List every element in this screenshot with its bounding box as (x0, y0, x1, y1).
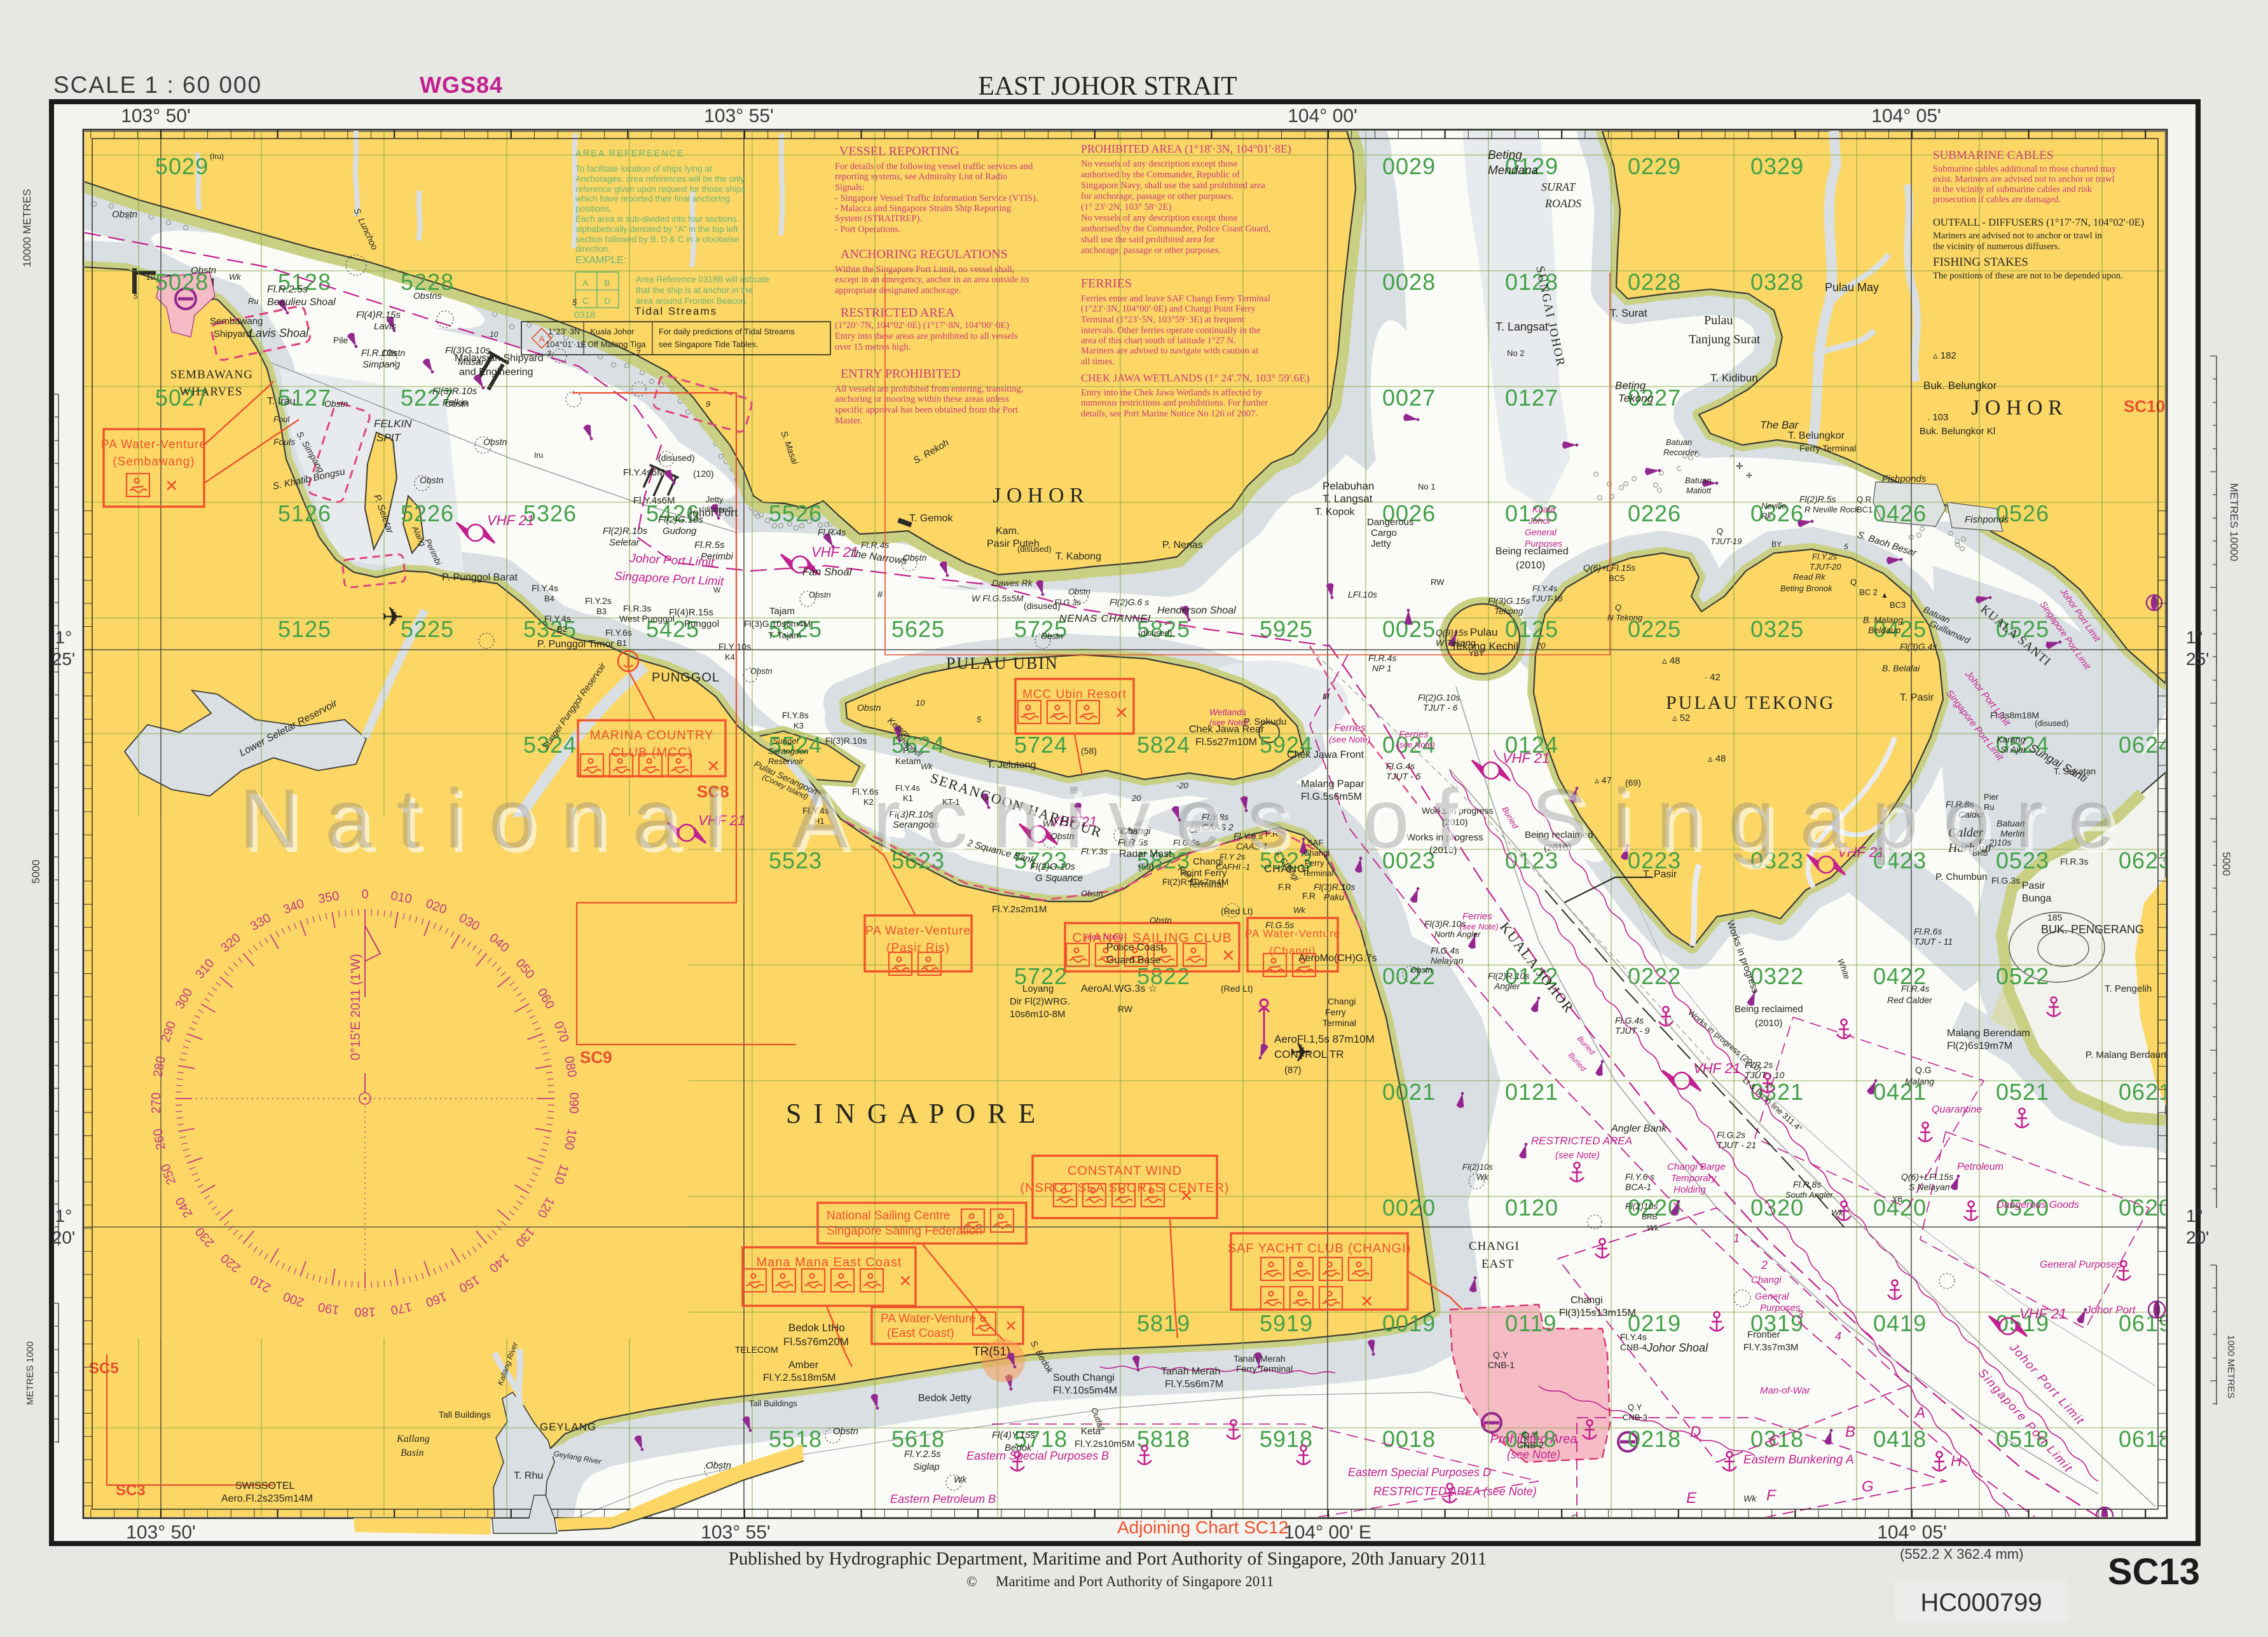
svg-text:5: 5 (977, 715, 982, 724)
svg-text:Fl.Y.2s: Fl.Y.2s (585, 596, 612, 606)
svg-text:Beting Bronok: Beting Bronok (1780, 584, 1833, 593)
svg-text:Q.Y: Q.Y (1493, 1350, 1509, 1360)
svg-text:Wk: Wk (1476, 1172, 1489, 1182)
svg-text:Loyang: Loyang (1022, 983, 1054, 994)
svg-text:over 15 metres high.: over 15 metres high. (835, 342, 911, 352)
svg-text:Fouls: Fouls (273, 437, 295, 447)
svg-text:Recorder: Recorder (1663, 448, 1698, 457)
svg-text:Fl.Y.2.5s: Fl.Y.2.5s (904, 1449, 941, 1460)
svg-text:Fl.R.4s: Fl.R.4s (1901, 983, 1929, 994)
svg-text:0419: 0419 (1873, 1310, 1927, 1336)
svg-text:Mendana: Mendana (1488, 164, 1538, 177)
svg-text:Obstn: Obstn (191, 265, 216, 276)
svg-text:WGS84: WGS84 (420, 72, 503, 98)
svg-text:Singapore Sailing Federation: Singapore Sailing Federation (827, 1224, 982, 1238)
svg-text:E: E (1686, 1490, 1697, 1507)
svg-text:Wk: Wk (1043, 819, 1055, 828)
svg-text:Each area is sub-divided i: Each area is sub-divided into four secti… (575, 214, 739, 224)
svg-text:EAST JOHOR STRAIT: EAST JOHOR STRAIT (978, 72, 1237, 101)
svg-text:1°: 1° (55, 627, 72, 647)
svg-text:Ferries: Ferries (1334, 723, 1366, 734)
svg-text:T. Langsat: T. Langsat (1495, 320, 1548, 333)
svg-text:Matiott: Matiott (1686, 486, 1712, 495)
svg-text:shall use the said pro: shall use the said prohibited area for (1081, 235, 1214, 245)
svg-text:10: 10 (916, 698, 925, 708)
svg-text:SAF YACHT CLUB (CHANGI): SAF YACHT CLUB (CHANGI) (1228, 1242, 1412, 1256)
svg-text:Fl(2)G.10s: Fl(2)G.10s (658, 514, 703, 525)
svg-text:G Squance: G Squance (1035, 873, 1083, 884)
svg-text:YBY: YBY (1469, 649, 1484, 658)
svg-text:Fl.3s8m18M: Fl.3s8m18M (1990, 710, 2039, 720)
svg-text:Paku: Paku (1324, 892, 1344, 902)
svg-text:Pulau May: Pulau May (1825, 281, 1879, 294)
svg-text:Obstn: Obstn (809, 590, 831, 599)
svg-text:P. Malang Berdaun: P. Malang Berdaun (2086, 1050, 2166, 1060)
svg-text:Terminal: Terminal (1302, 868, 1333, 878)
svg-text:T. Gemok: T. Gemok (909, 513, 953, 524)
svg-text:authorised by the Comman: authorised by the Commander, Republic of (1081, 170, 1240, 180)
svg-text:5818: 5818 (1137, 1426, 1190, 1452)
svg-text:Amber: Amber (788, 1360, 819, 1371)
svg-text:Master.: Master. (835, 416, 862, 426)
svg-text:Fl.Y.4s: Fl.Y.4s (544, 613, 571, 624)
svg-text:Johor: Johor (1528, 516, 1551, 526)
svg-text:Fl.Y.2s: Fl.Y.2s (1812, 552, 1838, 561)
svg-text:Pelabuhan: Pelabuhan (1323, 480, 1374, 492)
svg-text:T. Irau: T. Irau (267, 396, 295, 407)
svg-text:Johor Port: Johor Port (2085, 1304, 2136, 1316)
svg-text:104° 05': 104° 05' (1871, 106, 1941, 127)
svg-text:SC5: SC5 (89, 1360, 119, 1377)
svg-text:(58): (58) (1081, 746, 1097, 756)
svg-text:5: 5 (1844, 542, 1848, 551)
svg-text:Adjoining Chart SC12: Adjoining Chart SC12 (1117, 1517, 1288, 1537)
svg-text:A: A (582, 278, 589, 288)
svg-text:VESSEL REPORTING: VESSEL REPORTING (839, 144, 959, 158)
svg-text:T. Surat: T. Surat (1610, 307, 1647, 319)
svg-text:SC3: SC3 (116, 1482, 146, 1499)
svg-text:(see Note): (see Note) (1460, 922, 1499, 931)
svg-text:CNB-1: CNB-1 (1488, 1360, 1515, 1370)
svg-text:1: 1 (1733, 1232, 1740, 1245)
svg-text:METRES 1000: METRES 1000 (25, 1341, 36, 1405)
svg-text:5918: 5918 (1260, 1426, 1313, 1452)
svg-text:No vessels of any desc: No vessels of any description except tho… (1081, 159, 1237, 169)
svg-text:T. Kabong: T. Kabong (1055, 551, 1101, 562)
svg-text:✕: ✕ (1005, 1318, 1017, 1335)
svg-text:Angler Bank: Angler Bank (1611, 1123, 1667, 1134)
svg-text:FELKIN: FELKIN (374, 418, 412, 430)
svg-text:Ferries: Ferries (1399, 729, 1429, 740)
svg-text:Malang: Malang (1905, 1076, 1934, 1086)
svg-text:Pasir: Pasir (2022, 880, 2045, 891)
svg-text:Tanjung Surat: Tanjung Surat (1689, 332, 1761, 346)
svg-text:OUTFALL - DIFFUSERS (1°17'·7N,: OUTFALL - DIFFUSERS (1°17'·7N, 104°02'·0… (1933, 216, 2144, 228)
svg-text:✕: ✕ (1360, 1292, 1374, 1311)
svg-text:Obstn: Obstn (750, 666, 773, 676)
svg-text:Siglap: Siglap (913, 1462, 940, 1472)
svg-text:Fl.Y.2s10m5M: Fl.Y.2s10m5M (1075, 1439, 1135, 1449)
svg-text:Signals:: Signals: (835, 182, 865, 193)
svg-text:BUK. PENGERANG: BUK. PENGERANG (2041, 923, 2144, 936)
svg-text:Fl(2)10s: Fl(2)10s (1625, 1201, 1658, 1211)
svg-text:(see Note): (see Note) (1396, 740, 1435, 750)
svg-text:Rk: Rk (1761, 511, 1772, 521)
svg-text:S Nelayan: S Nelayan (1909, 1182, 1950, 1192)
svg-text:Obstn: Obstn (324, 399, 348, 409)
svg-text:Fl(3)R.10s: Fl(3)R.10s (825, 736, 867, 746)
svg-text:Wk: Wk (229, 272, 242, 282)
svg-text:0229: 0229 (1628, 153, 1681, 179)
svg-text:Fl(4)R.15s: Fl(4)R.15s (669, 607, 713, 618)
svg-text:No 1: No 1 (1418, 482, 1435, 491)
svg-text:Fl.Y.6s: Fl.Y.6s (605, 627, 632, 638)
svg-text:10: 10 (490, 330, 498, 339)
svg-text:K4: K4 (725, 652, 735, 662)
svg-text:National Sailing Centre: National Sailing Centre (827, 1209, 950, 1223)
svg-text:090: 090 (567, 1092, 581, 1113)
svg-text:Fishponds: Fishponds (1882, 474, 1927, 484)
svg-text:5919: 5919 (1260, 1310, 1313, 1336)
svg-text:Ketam: Ketam (895, 756, 921, 766)
svg-text:GEYLANG: GEYLANG (540, 1421, 596, 1433)
svg-text:F: F (1766, 1487, 1777, 1504)
svg-text:(disused): (disused) (658, 453, 695, 463)
svg-text:0226: 0226 (1628, 500, 1681, 526)
svg-text:Simpang: Simpang (362, 359, 401, 370)
svg-text:T. Langsat: T. Langsat (1323, 493, 1373, 505)
svg-text:Submarine cables additional to: Submarine cables additional to those cha… (1933, 164, 2117, 174)
svg-text:(see Note): (see Note) (1555, 1150, 1600, 1161)
svg-text:ROADS: ROADS (1544, 197, 1581, 210)
svg-text:Fl(4)R.15s: Fl(4)R.15s (356, 310, 401, 320)
svg-text:SWISSOTEL: SWISSOTEL (235, 1481, 294, 1491)
svg-text:Wk: Wk (1647, 1223, 1660, 1233)
svg-text:W: W (713, 586, 721, 594)
svg-text:0623: 0623 (2119, 847, 2172, 873)
svg-text:Tekong: Tekong (1494, 606, 1523, 616)
svg-text:Tall Buildings: Tall Buildings (439, 1409, 491, 1420)
svg-text:Johor Shoal: Johor Shoal (1646, 1341, 1708, 1354)
svg-text:No 2: No 2 (1507, 348, 1524, 358)
svg-text:Obstn: Obstn (1081, 889, 1103, 898)
svg-text:Fl.G.4s: Fl.G.4s (1431, 945, 1459, 955)
svg-text:T. Pengelih: T. Pengelih (2105, 983, 2152, 994)
svg-text:SURAT: SURAT (1541, 181, 1576, 193)
svg-text:Fl.5s76m20M: Fl.5s76m20M (783, 1336, 849, 1348)
svg-text:For details of the following v: For details of the following vessel traf… (835, 161, 1033, 172)
svg-text:Obstn: Obstn (112, 209, 137, 220)
svg-text:T. Jelutong: T. Jelutong (987, 760, 1036, 771)
svg-text:Terminal: Terminal (1323, 1018, 1356, 1028)
svg-text:Mariners are advised to naviga: Mariners are advised to navigate with ca… (1081, 346, 1258, 356)
svg-text:Q: Q (1717, 526, 1723, 536)
svg-text:Maritime and Port Authority of: Maritime and Port Authority of Singapore… (996, 1573, 1274, 1589)
svg-text:3: 3 (1797, 1308, 1803, 1321)
svg-text:Fl.5s27m10M: Fl.5s27m10M (1195, 737, 1257, 748)
svg-text:Entry into the Chek Jawa Wetla: Entry into the Chek Jawa Wetlands is aff… (1081, 388, 1263, 398)
svg-text:Buk. Belungkor Kl: Buk. Belungkor Kl (1920, 426, 1995, 437)
svg-text:positions.: positions. (575, 204, 612, 214)
svg-text:25': 25' (52, 649, 76, 669)
svg-text:Iru: Iru (534, 451, 543, 460)
svg-text:BY: BY (1771, 540, 1782, 549)
svg-text:that the ship is at ancho: that the ship is at anchor in the (636, 285, 753, 295)
svg-text:▲: ▲ (1881, 591, 1888, 599)
svg-text:Obstn: Obstn (1041, 631, 1063, 641)
svg-text:TJUT - 6: TJUT - 6 (1423, 702, 1458, 713)
svg-text:Ferry Terminal: Ferry Terminal (1236, 1364, 1293, 1374)
svg-text:Changi Barge: Changi Barge (1667, 1161, 1726, 1172)
svg-text:Lavis: Lavis (374, 321, 397, 332)
svg-text:▵ 52: ▵ 52 (1672, 713, 1690, 723)
svg-text:FERRIES: FERRIES (1081, 277, 1132, 291)
svg-text:reference given upon request f: reference given upon request for those s… (575, 184, 745, 194)
svg-text:0120: 0120 (1505, 1195, 1558, 1221)
svg-text:104°01'·1E: 104°01'·1E (546, 339, 586, 349)
svg-text:0121: 0121 (1505, 1079, 1558, 1105)
svg-text:All vessels are prohibited: All vessels are prohibited from entering… (835, 384, 1023, 394)
svg-text:HC000799: HC000799 (1920, 1589, 2042, 1617)
svg-text:103° 50': 103° 50' (121, 106, 190, 127)
svg-text:TJUT - 21: TJUT - 21 (1717, 1140, 1756, 1150)
svg-text:0028: 0028 (1382, 269, 1436, 295)
svg-text:Wk: Wk (954, 1474, 967, 1484)
svg-text:1°: 1° (2186, 627, 2203, 647)
svg-text:PA Water-Venture: PA Water-Venture (865, 924, 971, 938)
svg-text:Q.G: Q.G (1915, 1065, 1932, 1075)
svg-text:. 103: . 103 (1927, 412, 1948, 423)
svg-text:the vicinity of numerous diffu: the vicinity of numerous diffusers. (1933, 242, 2060, 252)
svg-text:103° 50': 103° 50' (126, 1522, 195, 1543)
svg-text:Quarantine: Quarantine (1932, 1104, 1982, 1115)
svg-text:▵ 48: ▵ 48 (1662, 655, 1680, 666)
svg-text:RESTRICTED AREA: RESTRICTED AREA (1531, 1135, 1632, 1147)
svg-text:Lavis Shoal: Lavis Shoal (249, 327, 309, 339)
svg-text:B: B (1845, 1423, 1855, 1441)
svg-text:(see Note): (see Note) (1329, 734, 1370, 744)
svg-text:direction.: direction. (575, 244, 610, 254)
svg-text:Eastern Special Purposes B: Eastern Special Purposes B (966, 1449, 1109, 1462)
svg-text:Fl.G.2s: Fl.G.2s (1717, 1130, 1745, 1140)
svg-text:Fl(2)10s: Fl(2)10s (1462, 1162, 1493, 1172)
svg-text:Fl.Y.3s7m3M: Fl.Y.3s7m3M (1743, 1342, 1798, 1353)
svg-text:R Neville Rock: R Neville Rock (1804, 505, 1860, 514)
svg-text:Angler: Angler (1494, 981, 1521, 991)
svg-text:W Fl.G.5s5M: W Fl.G.5s5M (972, 593, 1024, 603)
svg-text:NENAS CHANNEL: NENAS CHANNEL (1059, 613, 1154, 624)
svg-text:PUNGGOL: PUNGGOL (652, 671, 720, 685)
svg-text:South Changi: South Changi (1053, 1373, 1115, 1383)
svg-text:all times.: all times. (1081, 357, 1115, 367)
svg-text:(2010): (2010) (1516, 560, 1545, 571)
svg-text:The Bar: The Bar (1760, 419, 1799, 431)
svg-text:Fl(3)G.10s: Fl(3)G.10s (445, 345, 490, 356)
svg-text:YB: YB (1892, 1195, 1902, 1203)
svg-text:✛: ✛ (1736, 461, 1743, 471)
svg-text:0522: 0522 (1996, 963, 2049, 989)
svg-text:Obstn: Obstn (903, 552, 927, 563)
svg-text:Obstn: Obstn (1410, 965, 1433, 975)
svg-text:Karang: Karang (1997, 734, 2025, 744)
svg-text:Batuan: Batuan (1685, 476, 1711, 485)
svg-text:Fl.Y.5s6m7M: Fl.Y.5s6m7M (1165, 1379, 1223, 1390)
svg-text:(Iru): (Iru) (210, 152, 224, 161)
svg-text:TJUT-18: TJUT-18 (1531, 594, 1563, 603)
svg-text:Batuan: Batuan (1666, 437, 1692, 447)
svg-text:section followed by B. D &: section followed by B. D & C in a clockw… (575, 235, 739, 244)
svg-text:Jetty: Jetty (706, 495, 724, 504)
svg-text:1°23'·3N: 1°23'·3N (548, 327, 580, 336)
svg-text:No vessels of any desc: No vessels of any description except tho… (1081, 213, 1237, 223)
svg-text:Felkin: Felkin (443, 397, 468, 408)
svg-text:Eastern Special Purposes D: Eastern Special Purposes D (1348, 1466, 1491, 1479)
svg-text:Wk: Wk (1831, 1208, 1844, 1217)
svg-text:Tekong: Tekong (1618, 392, 1654, 404)
svg-text:P.: P. (903, 745, 910, 755)
svg-text:D: D (604, 296, 610, 306)
svg-text:RW: RW (1431, 577, 1445, 587)
svg-text:0125: 0125 (1505, 616, 1558, 642)
svg-text:J O H O R: J O H O R (993, 484, 1084, 507)
svg-text:Pulau: Pulau (1470, 626, 1497, 638)
svg-text:AeroMo(CH)G.7s: AeroMo(CH)G.7s (1298, 953, 1377, 964)
svg-text:Tidal Streams: Tidal Streams (635, 305, 717, 317)
svg-text:JOHOR: JOHOR (1106, 443, 1109, 444)
svg-text:Q.R: Q.R (1857, 495, 1871, 504)
svg-text:5125: 5125 (278, 616, 331, 642)
svg-text:Being reclaimed: Being reclaimed (1735, 1004, 1803, 1015)
svg-text:Fl(3)G.10s6m4M: Fl(3)G.10s6m4M (744, 619, 811, 629)
svg-text:5226: 5226 (401, 500, 454, 526)
svg-text:Shipyard: Shipyard (214, 329, 251, 339)
svg-text:VHF 21: VHF 21 (1693, 1060, 1740, 1076)
svg-text:PULAU UBIN: PULAU UBIN (946, 654, 1059, 673)
svg-text:5819: 5819 (1137, 1310, 1190, 1336)
svg-text:Dir Fl(2)WRG.: Dir Fl(2)WRG. (1010, 996, 1070, 1007)
svg-text:D: D (1690, 1423, 1701, 1441)
svg-text:ENTRY PROHIBITED: ENTRY PROHIBITED (841, 367, 961, 381)
svg-text:0620: 0620 (2119, 1195, 2172, 1221)
svg-text:Obstn: Obstn (1068, 587, 1090, 596)
svg-text:Fl(2)G.10s: Fl(2)G.10s (1418, 692, 1460, 702)
svg-text:AeroAl.WG.3s ☆: AeroAl.WG.3s ☆ (1081, 983, 1157, 994)
svg-text:Entry into these areas are pro: Entry into these areas are prohibited to… (835, 331, 1018, 341)
svg-text:Fl.R.4s: Fl.R.4s (818, 527, 846, 537)
svg-text:RESTRICTED AREA: RESTRICTED AREA (841, 306, 955, 320)
svg-text:▵ 182: ▵ 182 (1933, 350, 1956, 361)
svg-text:0328: 0328 (1750, 269, 1804, 295)
svg-text:Fl.R.10s: Fl.R.10s (361, 348, 397, 359)
svg-text:0228: 0228 (1628, 269, 1681, 295)
svg-text:Malang Berendam: Malang Berendam (1947, 1028, 2030, 1039)
svg-text:Fl(3)R.10s: Fl(3)R.10s (1314, 882, 1355, 892)
svg-text:(Sembawang): (Sembawang) (113, 455, 195, 469)
svg-text:LFl.10s: LFl.10s (1348, 589, 1377, 599)
svg-text:(2010): (2010) (1755, 1018, 1782, 1029)
svg-text:Beting: Beting (1615, 380, 1646, 392)
svg-text:· 42: · 42 (1704, 672, 1721, 683)
svg-text:Punggol: Punggol (684, 619, 719, 629)
svg-text:Chek Jawa Front: Chek Jawa Front (1287, 750, 1364, 760)
svg-text:0325: 0325 (1750, 616, 1804, 642)
svg-text:appropriate designated anchora: appropriate designated anchorage. (835, 285, 961, 296)
svg-text:0222: 0222 (1628, 963, 1681, 989)
svg-text:(East Coast): (East Coast) (887, 1327, 954, 1340)
svg-text:103° 55': 103° 55' (704, 106, 773, 127)
svg-text:G: G (1862, 1478, 1874, 1495)
svg-text:5126: 5126 (278, 500, 331, 526)
svg-text:Fl.G.4s: Fl.G.4s (1386, 761, 1415, 771)
svg-text:(see Note): (see Note) (1085, 932, 1124, 942)
svg-text:Petroleum: Petroleum (1957, 1161, 2003, 1172)
svg-text:Fl.R.6s: Fl.R.6s (1914, 926, 1942, 936)
svg-text:Bunga: Bunga (2022, 893, 2051, 904)
svg-text:10s6m10-8M: 10s6m10-8M (1010, 1009, 1066, 1020)
svg-text:Perimbi: Perimbi (701, 551, 734, 562)
svg-text:Anchorages. area references wi: Anchorages. area references will be the … (575, 174, 745, 184)
svg-text:Fl(3)15s13m15M: Fl(3)15s13m15M (1559, 1308, 1636, 1319)
svg-text:104° 00': 104° 00' (1288, 106, 1357, 127)
svg-text:Fl(3)R.10s: Fl(3)R.10s (432, 386, 478, 397)
svg-text:exist. Mariners are advised no: exist. Mariners are advised not to ancho… (1933, 174, 2114, 184)
svg-text:Fl(2)6s19m7M: Fl(2)6s19m7M (1947, 1041, 2012, 1051)
svg-text:N Tekong: N Tekong (1607, 613, 1643, 622)
svg-text:20': 20' (52, 1228, 76, 1247)
svg-text:Fl(3)G.15s: Fl(3)G.15s (1488, 596, 1530, 606)
svg-text:Tanah Merah: Tanah Merah (1234, 1353, 1286, 1364)
svg-text:Frontier: Frontier (1747, 1329, 1780, 1340)
svg-text:VHF 21: VHF 21 (487, 512, 534, 528)
svg-text:9: 9 (706, 399, 710, 409)
svg-text:(disused): (disused) (1138, 628, 1172, 638)
svg-text:Temporary: Temporary (1671, 1173, 1717, 1184)
svg-text:✕: ✕ (898, 1271, 912, 1291)
svg-text:Q: Q (1850, 577, 1857, 587)
svg-text:RESTRICTED AREA (see Note): RESTRICTED AREA (see Note) (1373, 1485, 1537, 1498)
svg-text:F.R: F.R (1302, 891, 1316, 901)
svg-text:Ferry Terminal: Ferry Terminal (1799, 443, 1856, 453)
svg-text:General Purposes: General Purposes (2040, 1259, 2122, 1270)
svg-text:Ferries enter and leave SAF Ch: Ferries enter and leave SAF Changi Ferry… (1081, 294, 1270, 304)
svg-text:Beldaun: Beldaun (1868, 625, 1901, 635)
svg-text:5618: 5618 (891, 1426, 945, 1452)
svg-text:25': 25' (2186, 649, 2210, 669)
svg-text:0318: 0318 (574, 310, 595, 320)
svg-text:0: 0 (361, 887, 368, 901)
svg-text:Mana Mana East Coast: Mana Mana East Coast (757, 1256, 902, 1270)
svg-text:- Singapore Vessel Traffic Inf: - Singapore Vessel Traffic Information S… (835, 193, 1038, 203)
svg-text:103° 55': 103° 55' (701, 1522, 770, 1543)
svg-text:To facilitate location o: To facilitate location of ships lying at (575, 164, 712, 174)
svg-text:T. Rhu: T. Rhu (514, 1470, 543, 1481)
svg-text:Fl.R.4s: Fl.R.4s (1368, 653, 1396, 663)
svg-text:1°: 1° (55, 1206, 72, 1226)
svg-text:VHF 21: VHF 21 (2019, 1306, 2066, 1322)
svg-text:10: 10 (146, 273, 155, 282)
svg-text:(disused): (disused) (1017, 544, 1051, 554)
svg-text:National Archives of Singapore: National Archives of Singapore (239, 772, 2115, 865)
svg-text:B3: B3 (596, 606, 607, 616)
svg-text:BC5: BC5 (1609, 573, 1625, 583)
svg-text:CONSTANT WIND: CONSTANT WIND (1068, 1164, 1182, 1178)
svg-text:Fl.Y.4s: Fl.Y.4s (532, 583, 558, 593)
svg-text:2: 2 (1761, 1259, 1768, 1271)
svg-text:- Malacca and Singapore Strait: - Malacca and Singapore Straits Ship Rep… (835, 203, 1011, 214)
svg-text:Gudong: Gudong (663, 526, 697, 537)
svg-text:Published by Hydrographic Depa: Published by Hydrographic Department, Ma… (729, 1549, 1487, 1569)
svg-text:WHARVES: WHARVES (179, 385, 242, 399)
